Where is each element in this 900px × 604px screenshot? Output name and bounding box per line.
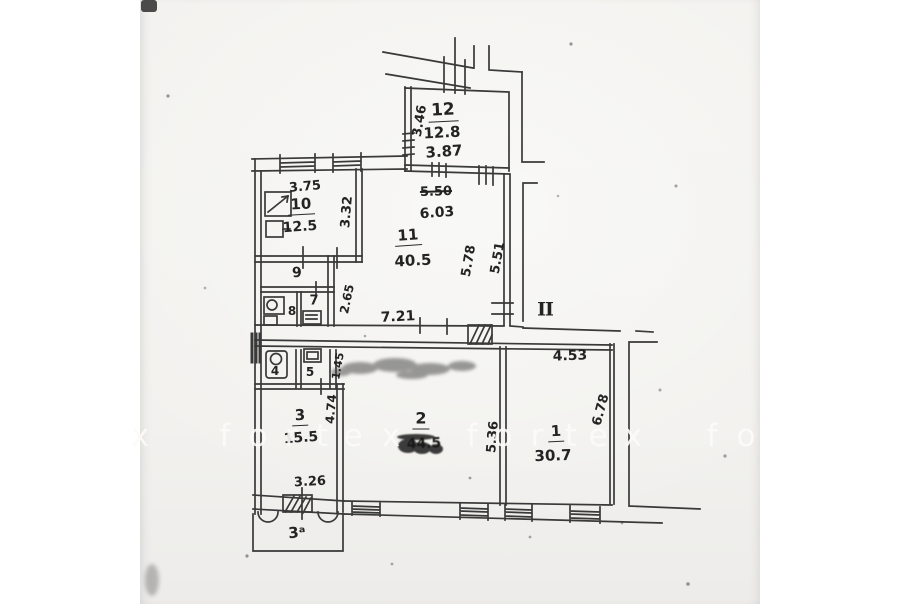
floor-plan-drawing	[0, 0, 900, 604]
walls	[252, 38, 700, 551]
ink-smudge	[331, 358, 476, 379]
ink-blot	[397, 434, 443, 454]
wall-hatch-corridor	[468, 325, 492, 344]
floor-plan-scan: 3.461212.83.875.506.033.751012.53.329782…	[0, 0, 900, 604]
